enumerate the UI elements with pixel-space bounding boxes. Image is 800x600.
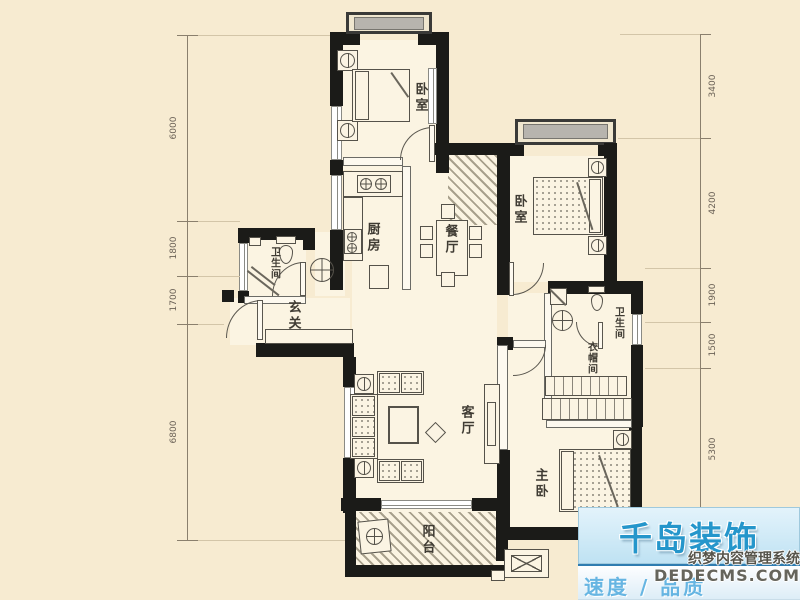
washing-machine-drum bbox=[366, 528, 383, 545]
room-label-bedroom-1: 卧室 bbox=[411, 82, 430, 114]
bath-shelf bbox=[249, 237, 261, 246]
partition-wall bbox=[402, 166, 411, 290]
master-wardrobe bbox=[542, 398, 632, 420]
burner bbox=[347, 232, 357, 242]
wall-segment bbox=[238, 228, 249, 243]
wall-segment bbox=[303, 228, 315, 250]
sofa-cushion bbox=[379, 461, 400, 481]
washbasin bbox=[552, 310, 573, 331]
sofa-cushion bbox=[352, 396, 375, 416]
cloakroom-shelf bbox=[545, 376, 627, 396]
burner bbox=[347, 243, 357, 253]
room-label-foyer: 玄关 bbox=[284, 300, 303, 332]
cms-watermark: 织梦内容管理系统 DEDECMS.COM bbox=[625, 551, 800, 585]
side-table-lamp-icon bbox=[354, 374, 374, 394]
bathroom-1-door-leaf bbox=[300, 262, 306, 296]
room-label-bedroom-2: 卧室 bbox=[510, 194, 529, 226]
dining-chair bbox=[441, 272, 455, 287]
fridge bbox=[369, 265, 389, 289]
room-label-cloakroom: 衣帽间 bbox=[584, 342, 599, 375]
toilet-tank bbox=[276, 236, 296, 244]
dim-value: 4200 bbox=[708, 192, 718, 215]
bedroom-2-door-arc bbox=[512, 263, 544, 295]
dim-tick bbox=[177, 35, 198, 36]
room-label-kitchen: 厨房 bbox=[363, 222, 382, 254]
flue-x bbox=[511, 555, 542, 572]
room-label-living: 客厅 bbox=[457, 405, 476, 437]
dim-tick bbox=[177, 221, 198, 222]
flue-step bbox=[491, 570, 505, 581]
cms-watermark-line1: 织梦内容管理系统 bbox=[625, 551, 800, 567]
cms-watermark-line2: DEDECMS.COM bbox=[625, 567, 800, 585]
wall-segment bbox=[256, 343, 354, 357]
window bbox=[239, 243, 248, 291]
sink-bowl bbox=[360, 178, 372, 190]
dim-value: 5300 bbox=[708, 438, 718, 461]
extension-line bbox=[198, 324, 224, 325]
wall-segment bbox=[631, 281, 643, 314]
dim-value: 1500 bbox=[708, 334, 718, 357]
bedroom-2-door-leaf bbox=[509, 262, 514, 296]
balcony-sliding-window bbox=[381, 500, 472, 509]
tv-screen bbox=[487, 402, 496, 446]
nightstand-lamp-icon bbox=[613, 430, 632, 449]
room-label-dining: 餐厅 bbox=[441, 224, 460, 256]
bay-window-glass bbox=[354, 17, 424, 30]
room-label-bathroom-1: 卫生间 bbox=[267, 247, 282, 280]
room-label-bathroom-2: 卫生间 bbox=[611, 307, 626, 340]
window bbox=[331, 175, 342, 230]
sink-bowl bbox=[375, 178, 387, 190]
room-label-master: 主卧 bbox=[531, 468, 550, 500]
dining-chair bbox=[420, 226, 433, 240]
extension-line bbox=[198, 35, 330, 36]
extension-line bbox=[618, 138, 700, 139]
nightstand-lamp-icon bbox=[337, 50, 358, 71]
dim-tick bbox=[177, 540, 198, 541]
dim-value: 1900 bbox=[708, 284, 718, 307]
wall-segment bbox=[222, 290, 234, 302]
dim-tick bbox=[177, 276, 198, 277]
dining-chair bbox=[441, 204, 455, 219]
wall-segment bbox=[631, 345, 643, 427]
bedroom-1-door-leaf bbox=[429, 125, 435, 162]
dimension-line-right bbox=[700, 34, 701, 530]
watermark: 千岛装饰 速度 / 品质 织梦内容管理系统 DEDECMS.COM bbox=[578, 507, 800, 600]
side-table-lamp-icon bbox=[354, 458, 374, 478]
extension-line bbox=[620, 34, 700, 35]
extension-line bbox=[198, 276, 240, 277]
coffee-table bbox=[388, 406, 419, 444]
dim-value: 6000 bbox=[169, 117, 179, 140]
extension-line bbox=[198, 540, 345, 541]
bathroom-2-door-leaf bbox=[598, 322, 603, 349]
nightstand-lamp-icon bbox=[337, 120, 358, 141]
sofa-cushion bbox=[401, 461, 422, 481]
extension-line bbox=[645, 322, 700, 323]
sofa-cushion bbox=[379, 373, 400, 393]
toilet-tank bbox=[588, 286, 605, 293]
partition-wall bbox=[343, 157, 403, 166]
window bbox=[632, 314, 642, 345]
bay-window-glass bbox=[523, 124, 608, 139]
sofa-cushion bbox=[352, 438, 375, 457]
wall-segment bbox=[330, 160, 343, 175]
sofa-cushion bbox=[352, 417, 375, 437]
dimension-line-left bbox=[187, 35, 188, 540]
wall-segment bbox=[330, 230, 343, 290]
wall-segment bbox=[345, 565, 508, 577]
dim-value: 3400 bbox=[708, 75, 718, 98]
shaft-hatch bbox=[448, 155, 497, 225]
master-bed-pillow bbox=[561, 451, 574, 510]
room-label-balcony: 阳台 bbox=[418, 524, 437, 556]
dim-tick bbox=[177, 324, 198, 325]
extension-line bbox=[645, 368, 700, 369]
dining-chair bbox=[420, 244, 433, 258]
washbasin bbox=[310, 258, 334, 282]
bed-1-pillow bbox=[355, 71, 369, 120]
dim-value: 1700 bbox=[169, 289, 179, 312]
extension-line bbox=[198, 221, 240, 222]
entry-door-leaf bbox=[257, 300, 263, 340]
shoe-cabinet bbox=[265, 329, 353, 344]
dining-chair bbox=[469, 226, 482, 240]
nightstand-lamp-icon bbox=[588, 158, 607, 177]
floor-plan-page: { "rooms": [ {"id":"bedroom-1","label":"… bbox=[0, 0, 800, 600]
dining-chair bbox=[469, 244, 482, 258]
dim-value: 1800 bbox=[169, 237, 179, 260]
dim-value: 6800 bbox=[169, 421, 179, 444]
nightstand-lamp-icon bbox=[588, 236, 607, 255]
extension-line bbox=[645, 268, 700, 269]
sofa-cushion bbox=[401, 373, 422, 393]
partition-wall bbox=[546, 420, 632, 428]
